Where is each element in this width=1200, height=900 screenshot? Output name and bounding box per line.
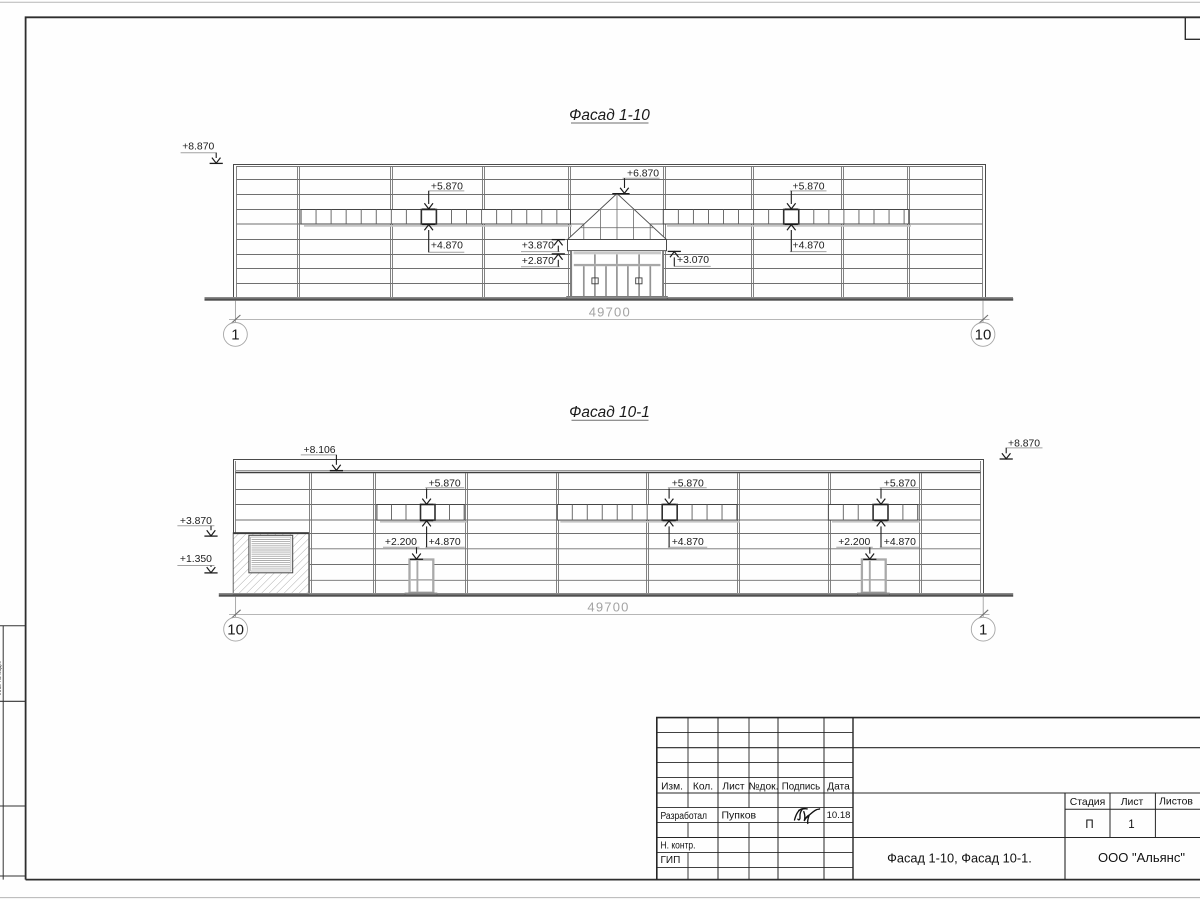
svg-text:Разработал: Разработал	[661, 810, 708, 822]
svg-text:№док.: №док.	[749, 781, 779, 792]
svg-text:10.18: 10.18	[827, 810, 851, 821]
svg-text:10: 10	[975, 327, 992, 344]
svg-text:+4.870: +4.870	[793, 241, 825, 252]
svg-text:П: П	[1085, 819, 1093, 831]
svg-text:1: 1	[231, 327, 239, 344]
svg-text:Подпись: Подпись	[782, 781, 821, 792]
svg-text:Фасад 1-10: Фасад 1-10	[569, 107, 650, 124]
svg-text:Фасад 1-10, Фасад 10-1.: Фасад 1-10, Фасад 10-1.	[887, 850, 1032, 865]
svg-text:1: 1	[1128, 819, 1134, 831]
svg-text:Дата: Дата	[827, 781, 850, 792]
svg-text:Инв. № подл.: Инв. № подл.	[0, 660, 3, 695]
svg-text:+4.870: +4.870	[884, 537, 916, 548]
svg-text:Фасад 10-1: Фасад 10-1	[569, 404, 650, 421]
svg-text:+3.870: +3.870	[522, 241, 554, 252]
svg-text:Пупков: Пупков	[722, 809, 757, 821]
svg-text:+2.870: +2.870	[522, 256, 554, 267]
svg-text:+4.870: +4.870	[429, 537, 461, 548]
svg-text:Н. контр.: Н. контр.	[661, 841, 696, 852]
svg-text:ГИП: ГИП	[661, 855, 681, 866]
svg-text:+4.870: +4.870	[431, 241, 463, 252]
svg-text:+8.870: +8.870	[182, 142, 214, 153]
svg-text:+1.350: +1.350	[180, 554, 212, 565]
svg-text:ООО "Альянс": ООО "Альянс"	[1098, 850, 1185, 865]
svg-text:+2.200: +2.200	[838, 537, 870, 548]
svg-text:Кол.: Кол.	[693, 781, 713, 792]
svg-text:+2.200: +2.200	[385, 537, 417, 548]
svg-text:49700: 49700	[589, 304, 631, 319]
svg-text:Листов: Листов	[1159, 796, 1193, 807]
svg-text:10: 10	[227, 622, 244, 639]
svg-text:Лист: Лист	[722, 781, 744, 792]
svg-text:+8.106: +8.106	[304, 445, 336, 456]
svg-text:Стадия: Стадия	[1070, 797, 1105, 808]
svg-text:+4.870: +4.870	[672, 537, 704, 548]
svg-text:Лист: Лист	[1121, 797, 1144, 808]
svg-text:1: 1	[979, 622, 987, 639]
svg-text:Изм.: Изм.	[661, 781, 683, 792]
svg-text:+3.070: +3.070	[677, 255, 709, 266]
svg-text:49700: 49700	[587, 600, 629, 615]
